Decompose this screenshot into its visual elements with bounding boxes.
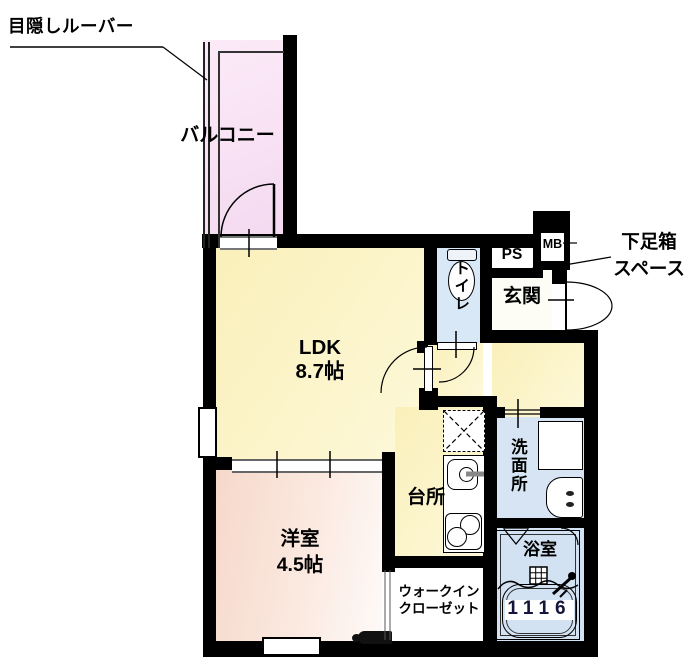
wic-door-panel xyxy=(358,631,392,644)
western-room-label: 洋室 xyxy=(270,529,330,549)
kitchen-faucet-icon xyxy=(459,467,474,482)
washing-machine-icon xyxy=(538,421,583,470)
balcony-label: バルコニー xyxy=(170,126,285,146)
faucet-dot xyxy=(566,491,574,496)
wall xyxy=(438,396,497,407)
ldk-door-leaf xyxy=(424,346,433,392)
refrigerator-space-icon xyxy=(443,410,485,452)
wall xyxy=(203,248,216,408)
wall xyxy=(540,407,584,418)
wall xyxy=(492,407,505,418)
balcony-railing xyxy=(218,51,284,53)
wall xyxy=(480,248,492,343)
mb-label: MB xyxy=(541,238,564,251)
room-western xyxy=(216,461,382,641)
sliding-partition xyxy=(232,459,382,473)
entrance-door-arc xyxy=(566,282,612,330)
wic-label-line1: ウォークイン xyxy=(396,585,482,599)
wall xyxy=(584,337,598,657)
balcony-door-sill xyxy=(220,236,277,250)
bathroom-label: 浴室 xyxy=(511,541,569,559)
bathtub-size-label: 1116 xyxy=(504,599,575,619)
wall xyxy=(490,268,543,278)
wic-door-knob xyxy=(352,634,361,642)
window-ldk-left xyxy=(198,407,217,458)
wall xyxy=(382,452,395,572)
wall xyxy=(490,330,598,343)
ldk-label: LDK xyxy=(285,337,355,359)
washroom-label: 洗面所 xyxy=(508,438,525,494)
shoebox-note-line2: スペース xyxy=(602,259,696,278)
wall xyxy=(483,407,497,650)
toilet-door-leaf xyxy=(437,342,477,350)
floorplan: 目隠しルーバー バルコニー LDK 8.7帖 トイレ PS MB 玄関 下足箱 … xyxy=(0,0,700,669)
vanity-sink-icon xyxy=(546,477,583,518)
faucet-dot xyxy=(566,502,574,507)
wall xyxy=(382,556,497,568)
hallway-right xyxy=(492,343,584,417)
wall xyxy=(492,518,584,528)
wall xyxy=(203,457,216,641)
western-room-size-label: 4.5帖 xyxy=(264,555,336,575)
wall xyxy=(552,268,567,284)
ps-label: PS xyxy=(494,247,530,263)
louver-leader-line xyxy=(163,47,207,80)
wall xyxy=(283,35,297,248)
ldk-size-label: 8.7帖 xyxy=(277,361,363,383)
toilet-label: トイレ xyxy=(452,260,468,313)
kitchen-label: 台所 xyxy=(400,488,452,508)
wall xyxy=(216,457,232,470)
entrance-label: 玄関 xyxy=(494,287,550,307)
balcony-railing xyxy=(218,51,220,248)
shoebox-note-line1: 下足箱 xyxy=(606,232,692,251)
stove-burner-icon xyxy=(447,527,467,547)
wall xyxy=(424,245,437,345)
window-western-bottom xyxy=(262,637,321,656)
wic-label-line2: クローゼット xyxy=(396,602,482,616)
louver-note-label: 目隠しルーバー xyxy=(8,17,134,35)
